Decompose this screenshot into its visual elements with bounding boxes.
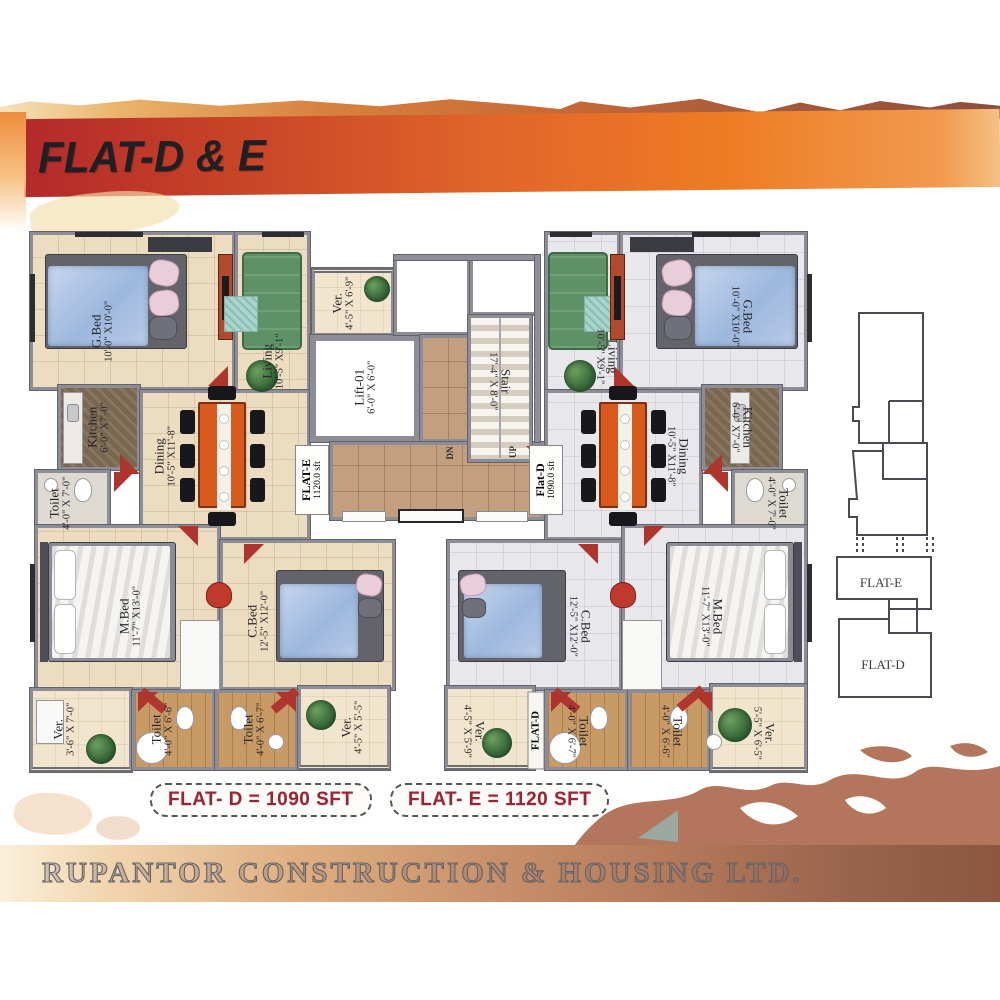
mbed-d-wardrobe bbox=[622, 620, 662, 690]
dining-d-chair bbox=[581, 478, 596, 502]
kitchen-d-counter bbox=[730, 392, 750, 464]
dining-e-chair bbox=[208, 386, 236, 400]
window bbox=[30, 564, 35, 642]
toilet-b2-d-wc bbox=[670, 706, 688, 730]
dining-d-chair bbox=[651, 478, 666, 502]
dining-e-chair bbox=[180, 410, 195, 434]
toilet-b1-e-wc bbox=[176, 706, 194, 730]
window bbox=[550, 232, 592, 237]
dining-e-table bbox=[198, 402, 246, 508]
dining-d-table bbox=[599, 402, 647, 508]
core-top-wall bbox=[394, 255, 540, 260]
window bbox=[807, 274, 812, 342]
flat-d-entry-tag: FLAT-D bbox=[528, 692, 545, 770]
page-title: FLAT-D & E bbox=[24, 130, 266, 183]
dining-d-chair bbox=[609, 512, 637, 526]
plant-icon bbox=[246, 360, 278, 392]
plant-icon bbox=[718, 708, 752, 742]
toilet-b1-e-shower bbox=[136, 732, 168, 764]
kitchen-e-counter bbox=[63, 392, 83, 464]
room-ver-right-e bbox=[298, 686, 390, 770]
paint-blob-bottom-left bbox=[96, 816, 140, 840]
plant-icon bbox=[564, 360, 596, 392]
cbed-e-blanket bbox=[280, 584, 358, 658]
gbed-d-pillow bbox=[664, 316, 692, 340]
dining-e-chair bbox=[250, 410, 265, 434]
key-plan: FLAT-E FLAT-D bbox=[823, 303, 941, 707]
mbed-e-wardrobe bbox=[180, 620, 220, 690]
footer-band: RUPANTOR CONSTRUCTION & HOUSING LTD. bbox=[0, 845, 1000, 902]
mbed-e-headboard bbox=[40, 542, 48, 662]
window bbox=[807, 564, 812, 642]
page: FLAT-D & E bbox=[0, 0, 1000, 1000]
plant-icon bbox=[482, 728, 512, 758]
mbed-d-headboard bbox=[794, 542, 802, 662]
gbed-d-blanket bbox=[695, 266, 795, 346]
stair-landing bbox=[394, 255, 470, 335]
stair-up-label: UP bbox=[508, 432, 518, 472]
door-toilet-e bbox=[114, 472, 134, 492]
dining-d-chair bbox=[581, 410, 596, 434]
mbed-e-pillow bbox=[54, 550, 76, 600]
mbed-d-chair bbox=[610, 582, 636, 608]
lobby-door-mat bbox=[342, 511, 386, 522]
window bbox=[75, 232, 143, 237]
keyplan-flat-d-label: FLAT-D bbox=[861, 657, 905, 672]
title-banner: FLAT-D & E bbox=[24, 109, 1000, 197]
dining-e-chair bbox=[250, 444, 265, 468]
main-door-mat bbox=[398, 509, 464, 523]
dining-e-chair bbox=[250, 478, 265, 502]
gbed-e-wardrobe bbox=[148, 237, 212, 252]
cbed-e-pillow bbox=[358, 598, 382, 618]
window bbox=[30, 274, 35, 342]
lift-shaft bbox=[310, 335, 420, 442]
ver-e-ac-unit bbox=[36, 700, 64, 744]
toilet-d-wc bbox=[746, 478, 764, 502]
gbed-d-wardrobe bbox=[630, 237, 694, 252]
area-tag-flat-d: FLAT- D = 1090 SFT bbox=[150, 783, 372, 817]
floor-plan: G.Bed10'-0" X10'-0" Living10'-5" X9'-1" … bbox=[30, 232, 812, 778]
core-corridor bbox=[420, 335, 470, 442]
door-toilet-d bbox=[708, 472, 728, 492]
flat-e-door-tag: FLAT-E1120.0 sft bbox=[295, 445, 329, 515]
toilet-b1-d-wc bbox=[590, 706, 608, 730]
keyplan-flat-e-label: FLAT-E bbox=[860, 575, 902, 590]
core-right-wall bbox=[535, 255, 540, 442]
plant-icon bbox=[364, 276, 390, 302]
stair-rail bbox=[499, 318, 501, 458]
flat-d-door-tag: Flat-D1090.0 sft bbox=[529, 445, 563, 515]
gbed-e-blanket bbox=[48, 266, 148, 346]
cbed-d-pillow bbox=[462, 598, 486, 618]
toilet-b2-e-basin bbox=[268, 734, 284, 750]
dining-e-chair bbox=[180, 478, 195, 502]
plant-icon bbox=[306, 700, 336, 730]
dining-e-chair bbox=[180, 444, 195, 468]
stair-dn-label: DN bbox=[445, 433, 455, 473]
dining-e-chair bbox=[208, 512, 236, 526]
living-e-rug bbox=[224, 296, 258, 332]
window bbox=[262, 232, 304, 237]
dining-d-chair bbox=[581, 444, 596, 468]
left-gradient-strip bbox=[0, 112, 26, 232]
mbed-e-pillow bbox=[54, 604, 76, 654]
toilet-b2-e-wc bbox=[230, 706, 248, 730]
kitchen-e-sink bbox=[67, 404, 79, 422]
toilet-e-wc bbox=[74, 478, 92, 502]
toilet-e-basin bbox=[44, 478, 58, 492]
gbed-e-pillow bbox=[149, 316, 177, 340]
toilet-d-basin bbox=[782, 478, 796, 492]
dining-d-chair bbox=[651, 444, 666, 468]
tv-icon bbox=[614, 276, 621, 320]
room-ver-left-d bbox=[445, 686, 535, 770]
window bbox=[692, 232, 760, 237]
stair-head-space bbox=[470, 255, 540, 315]
dining-d-chair bbox=[609, 386, 637, 400]
mbed-e-chair bbox=[206, 582, 232, 608]
mbed-d-pillow bbox=[764, 550, 786, 600]
company-name: RUPANTOR CONSTRUCTION & HOUSING LTD. bbox=[0, 857, 803, 890]
lobby-door-mat bbox=[476, 511, 528, 522]
dining-d-chair bbox=[651, 410, 666, 434]
paint-blob-bottom-left bbox=[11, 788, 94, 840]
plant-icon bbox=[86, 734, 116, 764]
mbed-d-pillow bbox=[764, 604, 786, 654]
kitchen-d-sink bbox=[734, 404, 746, 422]
